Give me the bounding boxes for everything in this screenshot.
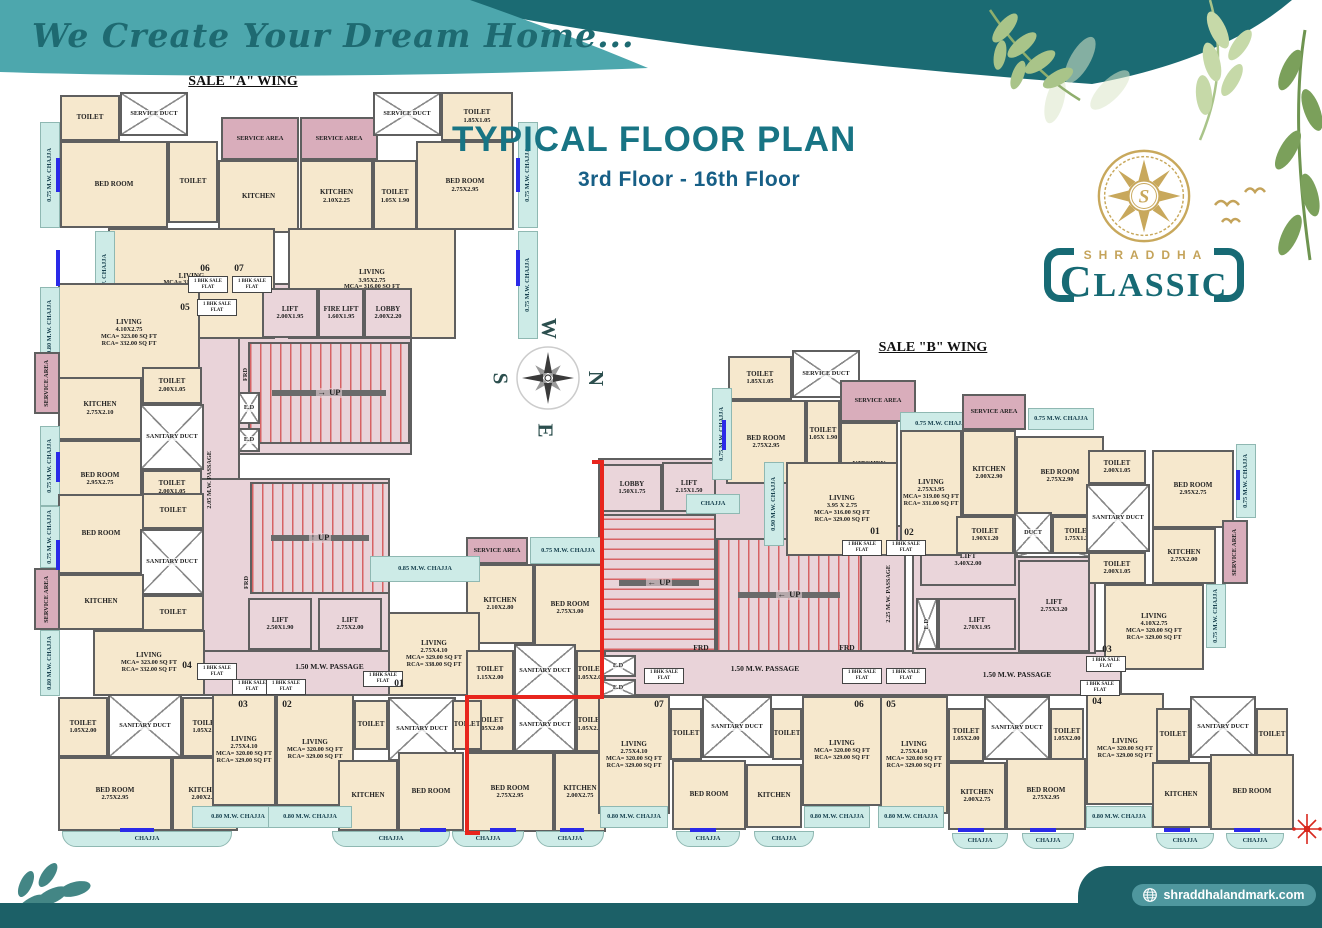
- toilet: TOILET: [168, 141, 218, 223]
- 03: 03: [234, 699, 252, 711]
- 03: 03: [1098, 644, 1116, 656]
- page-title: TYPICAL FLOOR PLAN: [452, 120, 856, 160]
- bed-room: BED ROOM: [672, 760, 746, 830]
- wing-a-title: SALE "A" WING: [168, 74, 318, 90]
- lift: LIFT2.75X2.00: [318, 598, 382, 650]
- up: ↑UP: [250, 482, 390, 594]
- 2-05-m-w-passage: 2.05 M.W. PASSAGE: [201, 420, 218, 540]
- service-area: SERVICE AREA: [221, 117, 299, 160]
- chajja: CHAJJA: [676, 831, 740, 847]
- living: LIVING2.75X4.10MCA= 320.00 SQ FTRCA= 329…: [598, 696, 670, 814]
- bed-room: BED ROOM: [1210, 754, 1294, 830]
- toilet: TOILET1.05X 1.90: [373, 160, 417, 233]
- 1-bhk-sale-flat: 1 BHK SALE FLAT: [842, 540, 882, 556]
- window: [516, 158, 520, 192]
- 0-80-m-w-chajja: 0.80 M.W. CHAJJA: [268, 806, 352, 828]
- toilet: TOILET2.00X1.05: [1088, 450, 1146, 484]
- 1-bhk-sale-flat: 1 BHK SALE FLAT: [232, 276, 272, 293]
- service-area: SERVICE AREA: [34, 568, 60, 630]
- 07: 07: [230, 263, 248, 275]
- window: [1234, 828, 1260, 832]
- 0-80-m-w-chajja: 0.80 M.W. CHAJJA: [804, 806, 870, 828]
- lift: LIFT2.00X1.95: [262, 288, 318, 338]
- service-area: SERVICE AREA: [1222, 520, 1248, 584]
- kitchen: KITCHEN: [1152, 762, 1210, 828]
- compass-letter-top: W: [536, 318, 561, 339]
- toilet: TOILET1.05X2.00: [1050, 708, 1084, 762]
- page: We Create Your Dream Home...: [0, 0, 1322, 928]
- frd: FRD: [688, 642, 714, 655]
- chajja: CHAJJA: [1226, 833, 1284, 849]
- compass-rose-icon: [516, 346, 580, 410]
- window: [722, 420, 726, 450]
- chajja: CHAJJA: [1156, 833, 1214, 849]
- chajja: CHAJJA: [452, 831, 524, 847]
- service-area: SERVICE AREA: [300, 117, 378, 160]
- window: [1030, 828, 1056, 832]
- toilet: TOILET1.90X1.20: [956, 516, 1014, 554]
- 0-80-m-w-chajja: 0.80 M.W. CHAJJA: [878, 806, 944, 828]
- 0-90-m-w-chajja: 0.90 M.W. CHAJJA: [764, 462, 784, 546]
- service-area: SERVICE AREA: [962, 394, 1026, 430]
- 1-bhk-sale-flat: 1 BHK SALE FLAT: [886, 540, 926, 556]
- window: [56, 540, 60, 570]
- sanitary-duct: SANITARY DUCT: [140, 404, 204, 470]
- bed-room: BED ROOM2.75X2.95: [1006, 758, 1086, 830]
- 07: 07: [650, 699, 668, 711]
- compass-letter-left: S: [487, 373, 512, 385]
- 1-50-m-w-passage: 1.50 M.W. PASSAGE: [952, 668, 1082, 682]
- e-d: E.D: [238, 392, 260, 424]
- 1-bhk-sale-flat: 1 BHK SALE FLAT: [266, 679, 306, 695]
- 1-bhk-sale-flat: 1 BHK SALE FLAT: [1080, 680, 1120, 696]
- sanitary-duct: SANITARY DUCT: [514, 644, 576, 697]
- frd: FRD: [834, 642, 860, 655]
- toilet: TOILET: [670, 708, 702, 760]
- fire-lift: FIRE LIFT1.60X1.95: [318, 288, 364, 338]
- sanitary-duct: SANITARY DUCT: [514, 697, 576, 752]
- kitchen: KITCHEN: [58, 574, 144, 630]
- 06: 06: [850, 699, 868, 711]
- bed-room: BED ROOM: [398, 752, 464, 831]
- sanitary-duct: SANITARY DUCT: [108, 694, 182, 758]
- mini-compass-icon: [1292, 812, 1322, 846]
- 05: 05: [176, 302, 194, 314]
- 06: 06: [196, 263, 214, 275]
- toilet: TOILET1.05X2.00: [948, 708, 984, 762]
- kitchen: KITCHEN2.00X2.75: [948, 762, 1006, 830]
- e-d: E.D: [238, 428, 260, 452]
- window: [490, 828, 516, 832]
- sanitary-duct: SANITARY DUCT: [1086, 484, 1150, 552]
- lift: LIFT2.75X3.20: [1018, 560, 1090, 652]
- lift: LIFT2.70X1.95: [938, 598, 1016, 650]
- 1-bhk-sale-flat: 1 BHK SALE FLAT: [1086, 656, 1126, 672]
- 0-75-m-w-chajja: 0.75 M.W. CHAJJA: [530, 537, 606, 564]
- e-d: E.D: [916, 598, 938, 650]
- 01: 01: [866, 526, 884, 538]
- window: [56, 452, 60, 482]
- service-area: SERVICE AREA: [34, 352, 60, 414]
- website-link[interactable]: shraddhalandmark.com: [1132, 884, 1316, 906]
- window: [516, 250, 520, 286]
- window: [560, 828, 584, 832]
- e-d: E.D: [600, 679, 636, 697]
- e-d: E.D: [600, 655, 636, 677]
- toilet: TOILET: [142, 493, 204, 529]
- 1-bhk-sale-flat: 1 BHK SALE FLAT: [188, 276, 228, 293]
- 05: 05: [882, 699, 900, 711]
- 0-75-m-w-chajja: 0.75 M.W. CHAJJA: [1206, 584, 1226, 648]
- 0-80-m-w-chajja: 0.80 M.W. CHAJJA: [1086, 806, 1152, 828]
- sanitary-duct: SANITARY DUCT: [140, 529, 204, 595]
- 04: 04: [178, 660, 196, 672]
- 02: 02: [900, 527, 918, 539]
- toilet: TOILET: [60, 95, 120, 141]
- service-duct: SERVICE DUCT: [120, 92, 188, 136]
- lift: LIFT2.50X1.90: [248, 598, 312, 650]
- bed-room: BED ROOM2.75X2.95: [466, 752, 554, 832]
- living: LIVING2.75X4.10MCA= 320.00 SQ FTRCA= 329…: [880, 696, 948, 814]
- frd: FRD: [240, 566, 253, 598]
- chajja: CHAJJA: [686, 494, 740, 514]
- sanitary-duct: SANITARY DUCT: [1190, 696, 1256, 758]
- 1-bhk-sale-flat: 1 BHK SALE FLAT: [197, 299, 237, 316]
- up: ←UP: [602, 514, 716, 652]
- kitchen: KITCHEN: [218, 160, 299, 233]
- website-text: shraddhalandmark.com: [1163, 888, 1304, 902]
- sanitary-duct: SANITARY DUCT: [702, 696, 772, 758]
- window: [56, 250, 60, 286]
- kitchen: KITCHEN2.00X2.90: [962, 430, 1016, 516]
- 1-50-m-w-passage: 1.50 M.W. PASSAGE: [700, 662, 830, 676]
- kitchen: KITCHEN2.10X2.25: [300, 160, 373, 233]
- 0-75-m-w-chajja: 0.75 M.W. CHAJJA: [518, 231, 538, 339]
- 0-75-m-w-chajja: 0.75 M.W. CHAJJA: [1028, 408, 1094, 430]
- lobby: LOBBY1.50X1.75: [602, 464, 662, 512]
- up: →UP: [248, 342, 410, 444]
- lobby: LOBBY2.00X2.20: [364, 288, 412, 338]
- 0-80-m-w-chajja: 0.80 M.W. CHAJJA: [40, 630, 60, 696]
- sanitary-duct: SANITARY DUCT: [984, 696, 1050, 760]
- duct: DUCT: [1014, 512, 1052, 554]
- 1-bhk-sale-flat: 1 BHK SALE FLAT: [842, 668, 882, 684]
- window: [1164, 828, 1190, 832]
- toilet: TOILET: [142, 595, 204, 631]
- 04: 04: [1088, 696, 1106, 708]
- toilet: TOILET: [354, 700, 388, 750]
- 1-bhk-sale-flat: 1 BHK SALE FLAT: [197, 663, 237, 680]
- bed-room: BED ROOM2.95X2.75: [1152, 450, 1234, 528]
- kitchen: KITCHEN: [746, 764, 802, 828]
- window: [56, 158, 60, 192]
- 0-85-m-w-chajja: 0.85 M.W. CHAJJA: [370, 556, 480, 582]
- toilet: TOILET1.05X2.00: [58, 697, 108, 757]
- 1-bhk-sale-flat: 1 BHK SALE FLAT: [644, 668, 684, 684]
- toilet: TOILET1.85X1.05: [728, 356, 792, 400]
- toilet: TOILET1.05X 1.90: [806, 400, 840, 468]
- 1-bhk-sale-flat: 1 BHK SALE FLAT: [886, 668, 926, 684]
- compass-letter-bottom: E: [533, 423, 558, 437]
- kitchen: KITCHEN2.75X2.00: [1152, 528, 1216, 584]
- 02: 02: [278, 699, 296, 711]
- window: [690, 828, 716, 832]
- compass-letter-right: N: [583, 371, 608, 386]
- toilet: TOILET: [1156, 708, 1190, 762]
- 01: 01: [390, 678, 408, 690]
- globe-icon: [1143, 888, 1157, 902]
- bed-room: BED ROOM2.75X3.00: [534, 564, 606, 652]
- frd: FRD: [239, 358, 252, 390]
- chajja: CHAJJA: [754, 831, 814, 847]
- toilet: TOILET: [772, 708, 802, 760]
- window: [958, 828, 984, 832]
- living: LIVINGMCA= 320.00 SQ FTRCA= 329.00 SQ FT: [802, 696, 882, 806]
- page-subtitle: 3rd Floor - 16th Floor: [578, 168, 800, 192]
- chajja: CHAJJA: [536, 831, 604, 847]
- 0-80-m-w-chajja: 0.80 M.W. CHAJJA: [600, 806, 668, 828]
- wing-b-title: SALE "B" WING: [858, 340, 1008, 356]
- window: [1236, 470, 1240, 500]
- service-duct: SERVICE DUCT: [373, 92, 441, 136]
- bed-room: BED ROOM: [58, 494, 144, 574]
- toilet: TOILET2.00X1.05: [142, 367, 202, 404]
- chajja: CHAJJA: [1022, 833, 1074, 849]
- bed-room: BED ROOM: [60, 141, 168, 228]
- chajja: CHAJJA: [952, 833, 1008, 849]
- window: [420, 828, 446, 832]
- toilet: TOILET: [452, 700, 482, 750]
- toilet: TOILET1.15X2.00: [466, 650, 514, 697]
- chajja: CHAJJA: [332, 831, 450, 847]
- kitchen: KITCHEN2.75X2.10: [58, 377, 142, 440]
- toilet: TOILET2.00X1.05: [1088, 552, 1146, 584]
